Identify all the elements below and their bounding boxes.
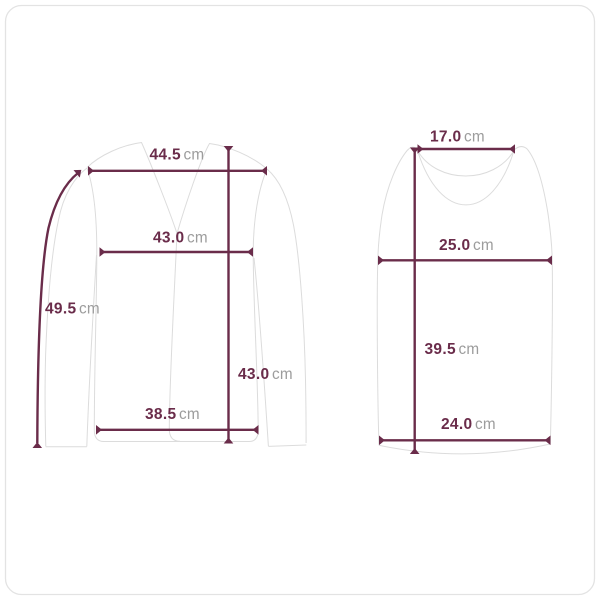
svg-text:17.0 cm: 17.0 cm	[430, 128, 485, 145]
svg-text:39.5 cm: 39.5 cm	[425, 341, 480, 358]
svg-text:38.5 cm: 38.5 cm	[145, 406, 200, 423]
svg-text:44.5 cm: 44.5 cm	[150, 147, 205, 164]
svg-text:43.0 cm: 43.0 cm	[238, 366, 293, 383]
svg-text:43.0 cm: 43.0 cm	[153, 230, 208, 247]
svg-text:49.5 cm: 49.5 cm	[45, 301, 100, 318]
svg-text:24.0 cm: 24.0 cm	[441, 416, 496, 433]
svg-text:25.0 cm: 25.0 cm	[439, 237, 494, 254]
